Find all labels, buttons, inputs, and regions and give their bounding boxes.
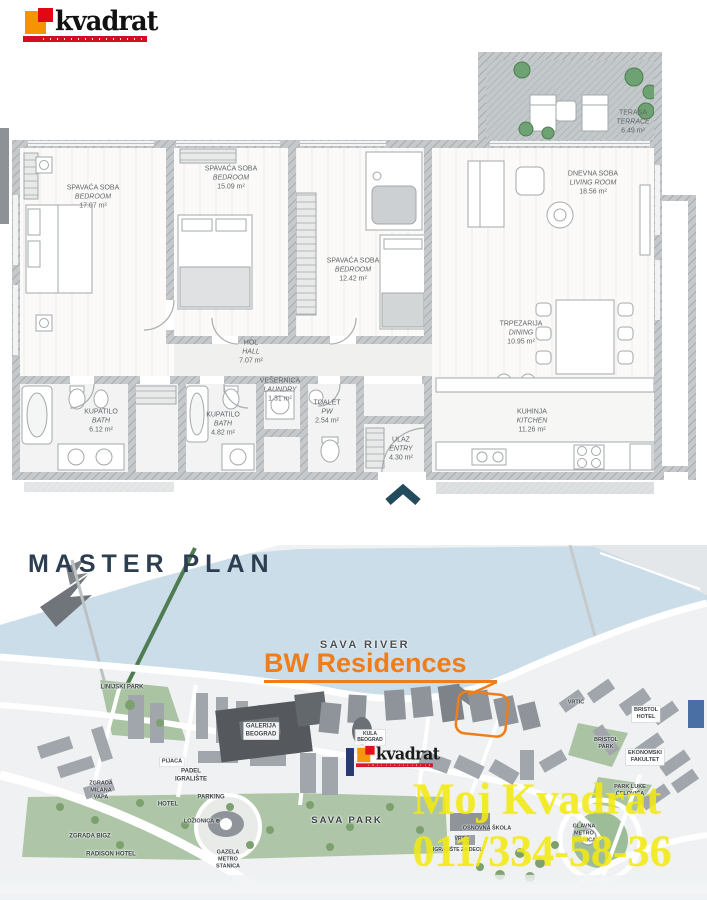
entry-direction-arrow-icon [388, 489, 418, 502]
kvadrat-logo: kvadrat [23, 8, 158, 44]
listing-image: kvadrat [0, 0, 707, 900]
kvadrat-logo-watermark: kvadrat [356, 746, 440, 768]
master-plan-title: MASTER PLAN [28, 550, 275, 579]
logo-wordmark: kvadrat [55, 8, 158, 35]
watermark-phone-number: 011/334-58-36 [412, 826, 671, 877]
bw-residences-label: BW Residences [264, 648, 467, 679]
map-blue-building [346, 748, 353, 776]
logo-red-square-icon [365, 746, 374, 755]
logo-red-bar [23, 36, 147, 42]
watermark-agency-name: Moj Kvadrat [413, 774, 661, 825]
floors [20, 60, 654, 494]
bottom-fade [0, 872, 707, 900]
logo-wordmark: kvadrat [376, 746, 440, 763]
bw-residences-underline [264, 680, 497, 683]
logo-red-square-icon [38, 8, 53, 22]
logo-red-bar [356, 763, 433, 767]
floor-plan-drawing [0, 45, 707, 565]
